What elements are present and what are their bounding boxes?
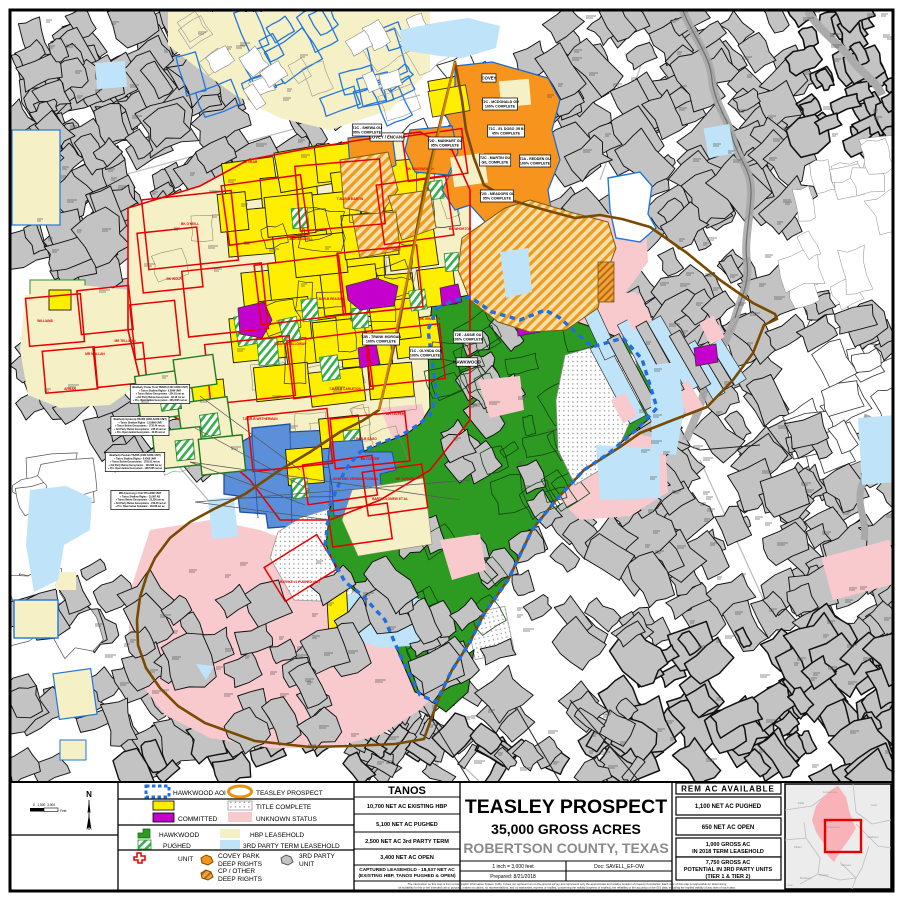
svg-text:100% COMPLETE: 100% COMPLETE: [485, 104, 516, 108]
svg-text:(EXISTING HBP, TANOS PUGHED &: (EXISTING HBP, TANOS PUGHED & OPEN): [358, 873, 456, 879]
svg-text:ARMAN: ARMAN: [64, 387, 77, 391]
svg-text:HAWKWOOD: HAWKWOOD: [453, 360, 481, 365]
svg-text:HBP LEASEHOLD: HBP LEASEHOLD: [250, 832, 304, 839]
svg-text:2,500 NET AC 3rd PARTY TERM: 2,500 NET AC 3rd PARTY TERM: [365, 839, 449, 845]
svg-text:BK COTTER: BK COTTER: [361, 457, 380, 461]
svg-text:10,700 NET AC EXISTING HBP: 10,700 NET AC EXISTING HBP: [367, 804, 448, 810]
svg-text:TITLE COMPLETE: TITLE COMPLETE: [256, 804, 312, 811]
svg-text:POTENTIAL IN 3RD PARTY UNITS: POTENTIAL IN 3RD PARTY UNITS: [684, 867, 773, 873]
svg-text:BARTHOLOMEW ET AL: BARTHOLOMEW ET AL: [372, 497, 408, 501]
svg-text:45% COMPLETE: 45% COMPLETE: [492, 131, 521, 135]
svg-text:1,100 NET AC PUGHED: 1,100 NET AC PUGHED: [695, 804, 762, 810]
svg-text:+ Pro. Open below Geosystem -: + Pro. Open below Geosystem - 1287,635 n…: [108, 467, 163, 470]
svg-text:T2D - MANHART GU: T2D - MANHART GU: [428, 139, 463, 143]
svg-text:T-BAR-B WETHERMAN: T-BAR-B WETHERMAN: [242, 417, 278, 421]
svg-text:+ Pro. Open below Geosystem -: + Pro. Open below Geosystem - 40.36 net …: [115, 431, 166, 434]
svg-text:Falls: Falls: [798, 801, 805, 805]
svg-text:100% COMPLETE: 100% COMPLETE: [410, 353, 441, 357]
svg-text:95% COMPLETE: 95% COMPLETE: [431, 143, 460, 147]
svg-text:100% COMPLETE: 100% COMPLETE: [366, 339, 397, 343]
svg-text:35,000 GROSS ACRES: 35,000 GROSS ACRES: [491, 821, 641, 837]
svg-text:N: N: [86, 790, 92, 799]
svg-text:(TIER 1 & TIER 2): (TIER 1 & TIER 2): [706, 874, 751, 880]
svg-text:95% COMPLETE: 95% COMPLETE: [353, 130, 382, 134]
svg-text:UNIT: UNIT: [178, 856, 193, 863]
svg-text:BK HEAB: BK HEAB: [243, 160, 258, 164]
svg-text:3,400 NET AC OPEN: 3,400 NET AC OPEN: [380, 855, 434, 861]
svg-text:DEEP RIGHTS: DEEP RIGHTS: [218, 876, 263, 883]
svg-text:Leon: Leon: [871, 803, 878, 807]
svg-text:Brazos: Brazos: [819, 873, 829, 877]
svg-text:RATHKE #1 PUGHED UNIT: RATHKE #1 PUGHED UNIT: [280, 580, 320, 584]
svg-text:T2C - SHEWA GU: T2C - SHEWA GU: [352, 126, 382, 130]
svg-text:650 NET AC OPEN: 650 NET AC OPEN: [702, 825, 754, 831]
svg-text:Grimes: Grimes: [841, 863, 851, 867]
svg-text:T1C - EL DOSO JR B: T1C - EL DOSO JR B: [488, 127, 524, 131]
svg-text:ROBERTSON COUNTY, TEXAS: ROBERTSON COUNTY, TEXAS: [463, 840, 668, 856]
svg-text:T2E - ASSIE GU: T2E - ASSIE GU: [455, 333, 482, 337]
svg-text:its suitability for his or her: its suitability for his or her intended …: [399, 886, 736, 890]
svg-text:BK WHORTON: BK WHORTON: [449, 227, 472, 231]
svg-text:COVEY PARK: COVEY PARK: [218, 853, 260, 860]
svg-text:COMMITTED: COMMITTED: [178, 816, 218, 823]
svg-text:0 1,500 3,000: 0 1,500 3,000: [33, 803, 55, 807]
svg-text:TANOS: TANOS: [388, 785, 426, 797]
svg-text:+ Pro. Open below Synwater - 1: + Pro. Open below Synwater - 102.88 net …: [115, 505, 165, 508]
svg-text:T2C - MARTIN GU: T2C - MARTIN GU: [480, 156, 511, 160]
svg-text:T-BAR-B SAVELL: T-BAR-B SAVELL: [287, 237, 313, 241]
svg-text:HAWKWOOD AOI: HAWKWOOD AOI: [173, 790, 226, 797]
svg-text:HAWKWOOD: HAWKWOOD: [159, 832, 200, 839]
svg-text:+ Pro. Open below Geosystem -: + Pro. Open below Geosystem - 366,0035 n…: [133, 399, 188, 402]
svg-text:T-BAR-B CARLETON: T-BAR-B CARLETON: [329, 387, 361, 391]
svg-text:WILLIAMS: WILLIAMS: [37, 319, 53, 323]
svg-text:5,100 NET AC PUGHED: 5,100 NET AC PUGHED: [376, 822, 438, 828]
svg-text:Limestone: Limestone: [823, 790, 837, 794]
svg-text:MR MOSLEY: MR MOSLEY: [380, 247, 400, 251]
svg-text:3RD PARTY: 3RD PARTY: [299, 853, 336, 860]
svg-text:BK WHATLEY: BK WHATLEY: [419, 317, 441, 321]
svg-text:MR TELFER: MR TELFER: [386, 412, 405, 416]
svg-text:100% COMPLETE: 100% COMPLETE: [520, 161, 551, 165]
svg-text:T2B - TRANK MORGAN: T2B - TRANK MORGAN: [361, 335, 401, 339]
svg-text:BK TURNER: BK TURNER: [396, 477, 415, 481]
svg-text:CP / OTHER: CP / OTHER: [218, 868, 255, 875]
svg-text:DEEP RIGHTS: DEEP RIGHTS: [218, 861, 263, 868]
svg-text:Feet: Feet: [60, 809, 66, 813]
svg-text:PUGHED: PUGHED: [163, 843, 191, 850]
svg-text:3RD PARTY TERM LEASEHOLD: 3RD PARTY TERM LEASEHOLD: [243, 843, 340, 850]
svg-text:TEASLEY PROSPECT: TEASLEY PROSPECT: [256, 790, 323, 797]
svg-text:T-BAR-B CALLOWAY: T-BAR-B CALLOWAY: [274, 342, 307, 346]
svg-text:Milam: Milam: [794, 845, 803, 849]
svg-text:Robertson: Robertson: [826, 825, 840, 829]
svg-text:1 inch = 3,000 feet: 1 inch = 3,000 feet: [492, 864, 534, 870]
svg-text:T2G - MEADORS GL: T2G - MEADORS GL: [480, 192, 515, 196]
svg-text:T1C - OLYNDA GU: T1C - OLYNDA GU: [409, 349, 440, 353]
svg-text:GIL COMPLETE: GIL COMPLETE: [482, 160, 509, 164]
svg-text:MR TELLMAN: MR TELLMAN: [114, 339, 136, 343]
svg-text:UNIT: UNIT: [299, 861, 314, 868]
svg-text:Madison: Madison: [867, 835, 879, 839]
svg-text:100% COMPLETE: 100% COMPLETE: [453, 337, 484, 341]
svg-text:Prepared: 8/21/2018: Prepared: 8/21/2018: [490, 874, 536, 880]
svg-text:T-BAR-B SAGO: T-BAR-B SAGO: [353, 437, 377, 441]
svg-text:T-BAR-B MARTIN: T-BAR-B MARTIN: [337, 197, 364, 201]
svg-text:BK WOLFE: BK WOLFE: [167, 277, 184, 281]
svg-text:MR MOLLAN: MR MOLLAN: [85, 352, 105, 356]
svg-text:1,000 GROSS AC: 1,000 GROSS AC: [706, 842, 750, 848]
svg-text:TEASLEY PROSPECT: TEASLEY PROSPECT: [465, 796, 667, 818]
svg-text:Doc: SAVELL_EF-OW: Doc: SAVELL_EF-OW: [594, 864, 644, 870]
svg-text:Burleson: Burleson: [800, 876, 812, 880]
svg-text:CAPTURED LEASEHOLD - 18,537 NE: CAPTURED LEASEHOLD - 18,537 NET AC: [359, 867, 455, 873]
svg-text:T2A - REDDEN GU: T2A - REDDEN GU: [519, 157, 551, 161]
svg-text:95% COMPLETE: 95% COMPLETE: [483, 196, 512, 200]
svg-text:IN 2018 TERM LEASEHOLD: IN 2018 TERM LEASEHOLD: [692, 849, 764, 855]
svg-text:T-BAR-B REAGAN: T-BAR-B REAGAN: [316, 297, 344, 301]
svg-text:BK O'NEILL: BK O'NEILL: [181, 222, 199, 226]
svg-text:Lee: Lee: [787, 883, 792, 887]
svg-text:REM AC AVAILABLE: REM AC AVAILABLE: [681, 785, 775, 794]
svg-text:7,750 GROSS AC: 7,750 GROSS AC: [706, 860, 750, 866]
svg-text:UNKNOWN STATUS: UNKNOWN STATUS: [256, 816, 317, 823]
svg-text:COVEY: COVEY: [482, 76, 497, 81]
svg-text:T2C - MCDONALD GU: T2C - MCDONALD GU: [481, 100, 519, 104]
svg-text:JOHN AND VIRGINIA PLEMAN: JOHN AND VIRGINIA PLEMAN: [332, 477, 379, 481]
